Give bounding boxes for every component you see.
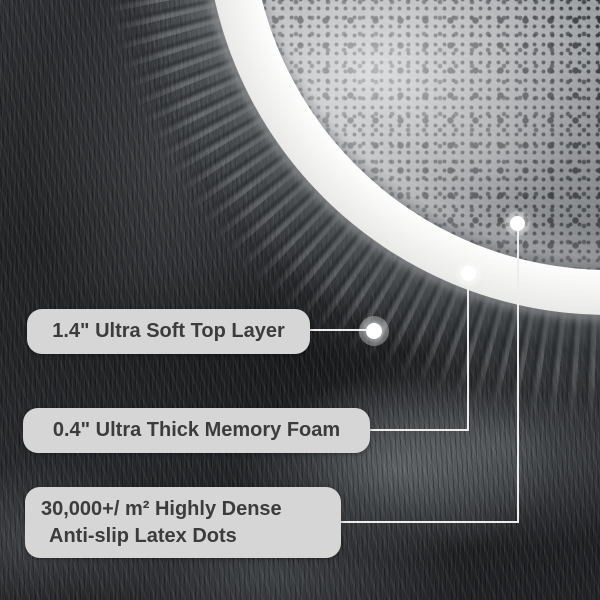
- leader-line-latex-dots-v: [517, 224, 519, 523]
- callout-memory-foam-text: 0.4" Ultra Thick Memory Foam: [53, 419, 340, 442]
- callout-latex-dots: 30,000+/ m² Highly Dense Anti-slip Latex…: [25, 487, 341, 558]
- callout-top-layer-text: 1.4" Ultra Soft Top Layer: [52, 320, 285, 343]
- callout-memory-foam: 0.4" Ultra Thick Memory Foam: [23, 408, 370, 453]
- callout-top-layer: 1.4" Ultra Soft Top Layer: [27, 309, 310, 354]
- marker-dot-memory-foam: [461, 266, 476, 281]
- marker-dot-latex-dots: [510, 216, 525, 231]
- leader-line-memory-foam-h: [368, 429, 469, 431]
- leader-line-memory-foam-v: [467, 273, 469, 431]
- product-image: 1.4" Ultra Soft Top Layer 0.4" Ultra Thi…: [0, 0, 600, 600]
- callout-latex-dots-line2: Anti-slip Latex Dots: [41, 523, 237, 550]
- marker-dot-top-layer: [366, 323, 382, 339]
- leader-line-latex-dots-h: [323, 521, 519, 523]
- callout-latex-dots-line1: 30,000+/ m² Highly Dense: [41, 496, 282, 523]
